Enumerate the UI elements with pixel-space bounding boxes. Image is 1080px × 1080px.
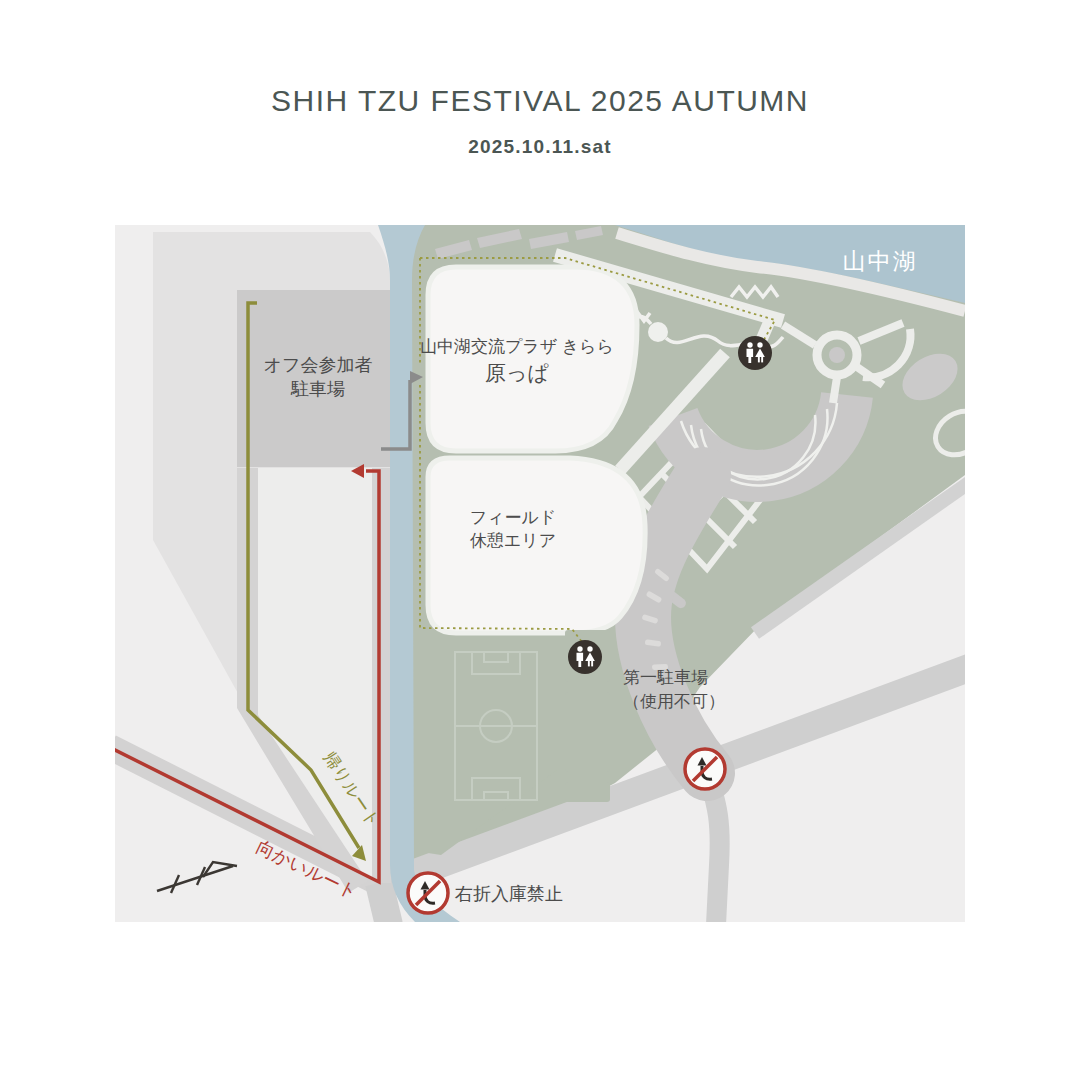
restroom-icon — [738, 336, 772, 370]
no-right-turn-icon — [685, 749, 725, 789]
poster: SHIH TZU FESTIVAL 2025 AUTUMN 2025.10.11… — [0, 0, 1080, 1080]
event-date: 2025.10.11.sat — [0, 136, 1080, 158]
offkai-parking-label-1: オフ会参加者 — [264, 355, 373, 375]
page-title: SHIH TZU FESTIVAL 2025 AUTUMN — [0, 84, 1080, 118]
field-label-1: フィールド — [470, 508, 557, 527]
no-right-turn-label: 右折入庫禁止 — [455, 884, 563, 904]
offkai-parking-label-2: 駐車場 — [290, 379, 345, 399]
plaza-label-1: 山中湖交流プラザ きらら — [420, 337, 614, 356]
parking1-label-1: 第一駐車場 — [623, 668, 708, 687]
parking1-label-2: （使用不可） — [623, 692, 725, 711]
plaza-block — [428, 267, 637, 451]
field-label-2: 休憩エリア — [470, 531, 556, 550]
map-svg: 山中湖 オフ会参加者 駐車場 山中湖交流プラザ きらら 原っぱ フィールド 休憩… — [115, 225, 965, 922]
map-container: 山中湖 オフ会参加者 駐車場 山中湖交流プラザ きらら 原っぱ フィールド 休憩… — [115, 225, 965, 922]
restroom-icon — [568, 640, 602, 674]
lake-label: 山中湖 — [843, 248, 918, 274]
plaza-label-2: 原っぱ — [485, 361, 549, 384]
no-right-turn-icon — [408, 873, 448, 913]
pond — [648, 322, 668, 342]
